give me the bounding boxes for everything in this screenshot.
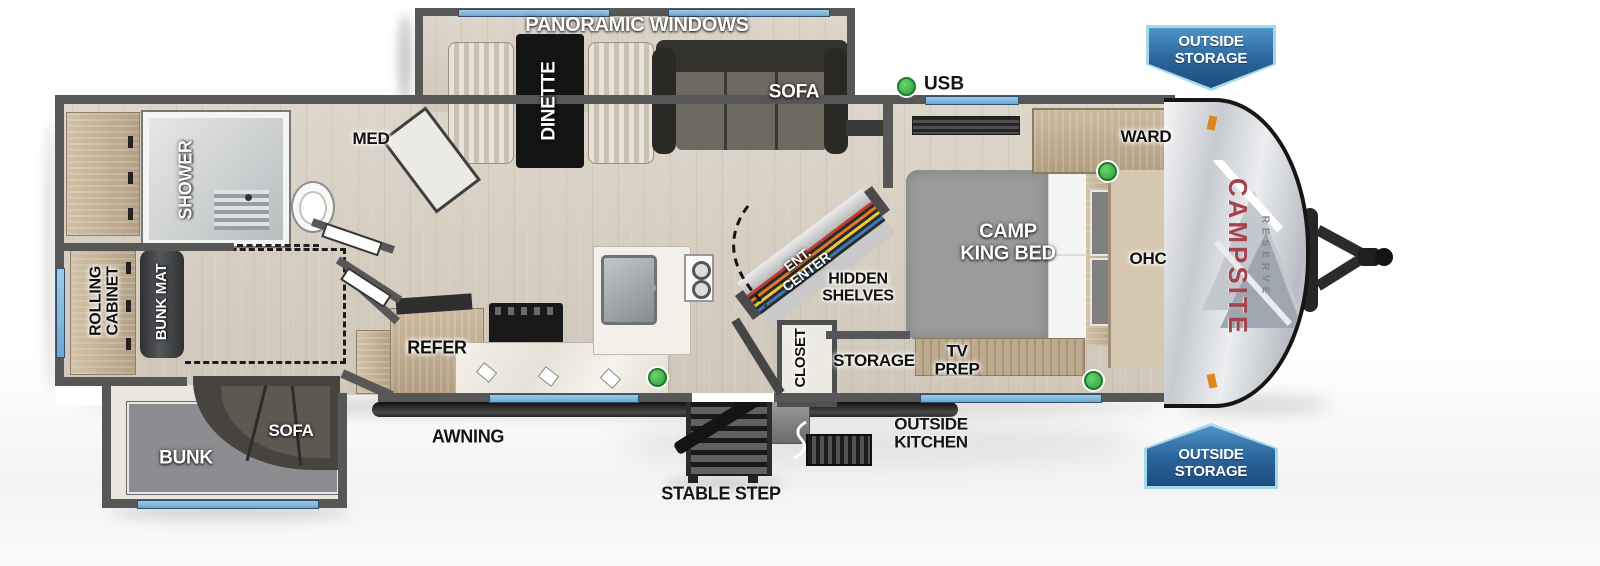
panoramic-windows-label: PANORAMIC WINDOWS xyxy=(525,15,748,37)
brand-campsite: CAMPSITE xyxy=(1224,178,1252,336)
power-cord xyxy=(786,420,814,460)
window-bedroom-top xyxy=(925,96,1019,105)
step-foot-1 xyxy=(688,474,698,483)
window-rear xyxy=(56,268,65,358)
bunk-outline-dashed xyxy=(185,248,346,364)
window-kitchen xyxy=(489,394,639,403)
window-bedroom-bottom xyxy=(920,394,1102,403)
refer-label: REFER xyxy=(407,338,467,357)
med-label: MED xyxy=(353,130,390,148)
hidden-shelves-label: HIDDEN SHELVES xyxy=(822,271,893,306)
wardrobe-handle-3 xyxy=(128,208,133,220)
stove-knobs xyxy=(495,307,555,315)
wardrobe-handle-1 xyxy=(128,136,133,148)
slide-bottom-wall-left xyxy=(102,385,111,508)
stable-step-label: STABLE STEP xyxy=(661,484,780,503)
outside-storage-top-label: OUTSIDE STORAGE xyxy=(1146,34,1276,68)
outside-storage-bottom-label: OUTSIDE STORAGE xyxy=(1144,447,1278,481)
shower-drain xyxy=(245,194,252,201)
marker-orange-bottom xyxy=(1207,373,1218,388)
usb-dot-bed-top xyxy=(1098,162,1117,181)
outside-kitchen-label: OUTSIDE KITCHEN xyxy=(894,416,967,453)
slide-top-wall-left xyxy=(415,8,423,102)
storage-label: STORAGE xyxy=(833,352,915,370)
ohc-cabinet xyxy=(1108,170,1169,368)
camp-king-bed-label: CAMP KING BED xyxy=(960,221,1055,264)
usb-legend-label: USB xyxy=(924,75,964,96)
marker-orange-top xyxy=(1207,115,1218,130)
window-slide-bottom xyxy=(137,500,319,509)
slide-top-wall-right xyxy=(847,8,855,102)
rolling-cabinet-handle-3 xyxy=(126,338,131,350)
bathroom-dashed-wall xyxy=(237,244,319,250)
awning-bar xyxy=(372,402,958,417)
hitch xyxy=(1300,200,1396,324)
usb-dot-counter xyxy=(648,368,667,387)
shower xyxy=(143,112,289,246)
wall-bathroom xyxy=(62,243,234,251)
shadow-slide-top xyxy=(398,14,412,104)
shower-label: SHOWER xyxy=(176,140,195,219)
closet-label: CLOSET xyxy=(793,328,809,387)
tv-prep-label: TV PREP xyxy=(934,343,979,380)
rolling-cabinet-label: ROLLING CABINET xyxy=(88,266,123,336)
slide-bottom-wall-right xyxy=(338,393,347,508)
outside-kitchen-griddle xyxy=(806,434,872,466)
awning-label: AWNING xyxy=(432,427,504,446)
rv-floorplan: PANORAMIC WINDOWS DINETTE SOFA BUNK SOFA… xyxy=(0,0,1600,566)
bunk-label: BUNK xyxy=(159,449,213,470)
dinette-label: DINETTE xyxy=(540,61,561,140)
ac-vent xyxy=(912,116,1020,135)
rolling-cabinet-handle-1 xyxy=(126,262,131,274)
wall-bottom-left xyxy=(55,377,187,386)
ohc-label: OHC xyxy=(1130,250,1167,268)
brand-reserve: RESERVE xyxy=(1259,216,1270,299)
step-foot-2 xyxy=(748,474,758,483)
outside-storage-banner-bottom: OUTSIDE STORAGE xyxy=(1144,423,1278,489)
shower-pan xyxy=(214,190,269,230)
entry-opening xyxy=(692,393,774,402)
wardrobe-handle-2 xyxy=(128,172,133,184)
sofa-top-label: SOFA xyxy=(769,83,820,104)
wall-bedroom-divider xyxy=(883,104,893,188)
ward-label: WARD xyxy=(1121,128,1172,146)
bunk-mat-label: BUNK MAT xyxy=(154,264,170,340)
front-cap: CAMPSITE RESERVE xyxy=(1164,98,1310,408)
door-swing-arc xyxy=(702,196,782,314)
rolling-cabinet-handle-2 xyxy=(126,300,131,312)
faucet xyxy=(646,283,656,293)
sofa-bottom-label: SOFA xyxy=(268,422,313,440)
sofa-top-back xyxy=(656,40,848,74)
outside-storage-banner-top: OUTSIDE STORAGE xyxy=(1146,25,1276,91)
usb-dot-bed-bottom xyxy=(1084,371,1103,390)
usb-legend-dot xyxy=(897,77,916,96)
wall-storage xyxy=(826,331,910,339)
